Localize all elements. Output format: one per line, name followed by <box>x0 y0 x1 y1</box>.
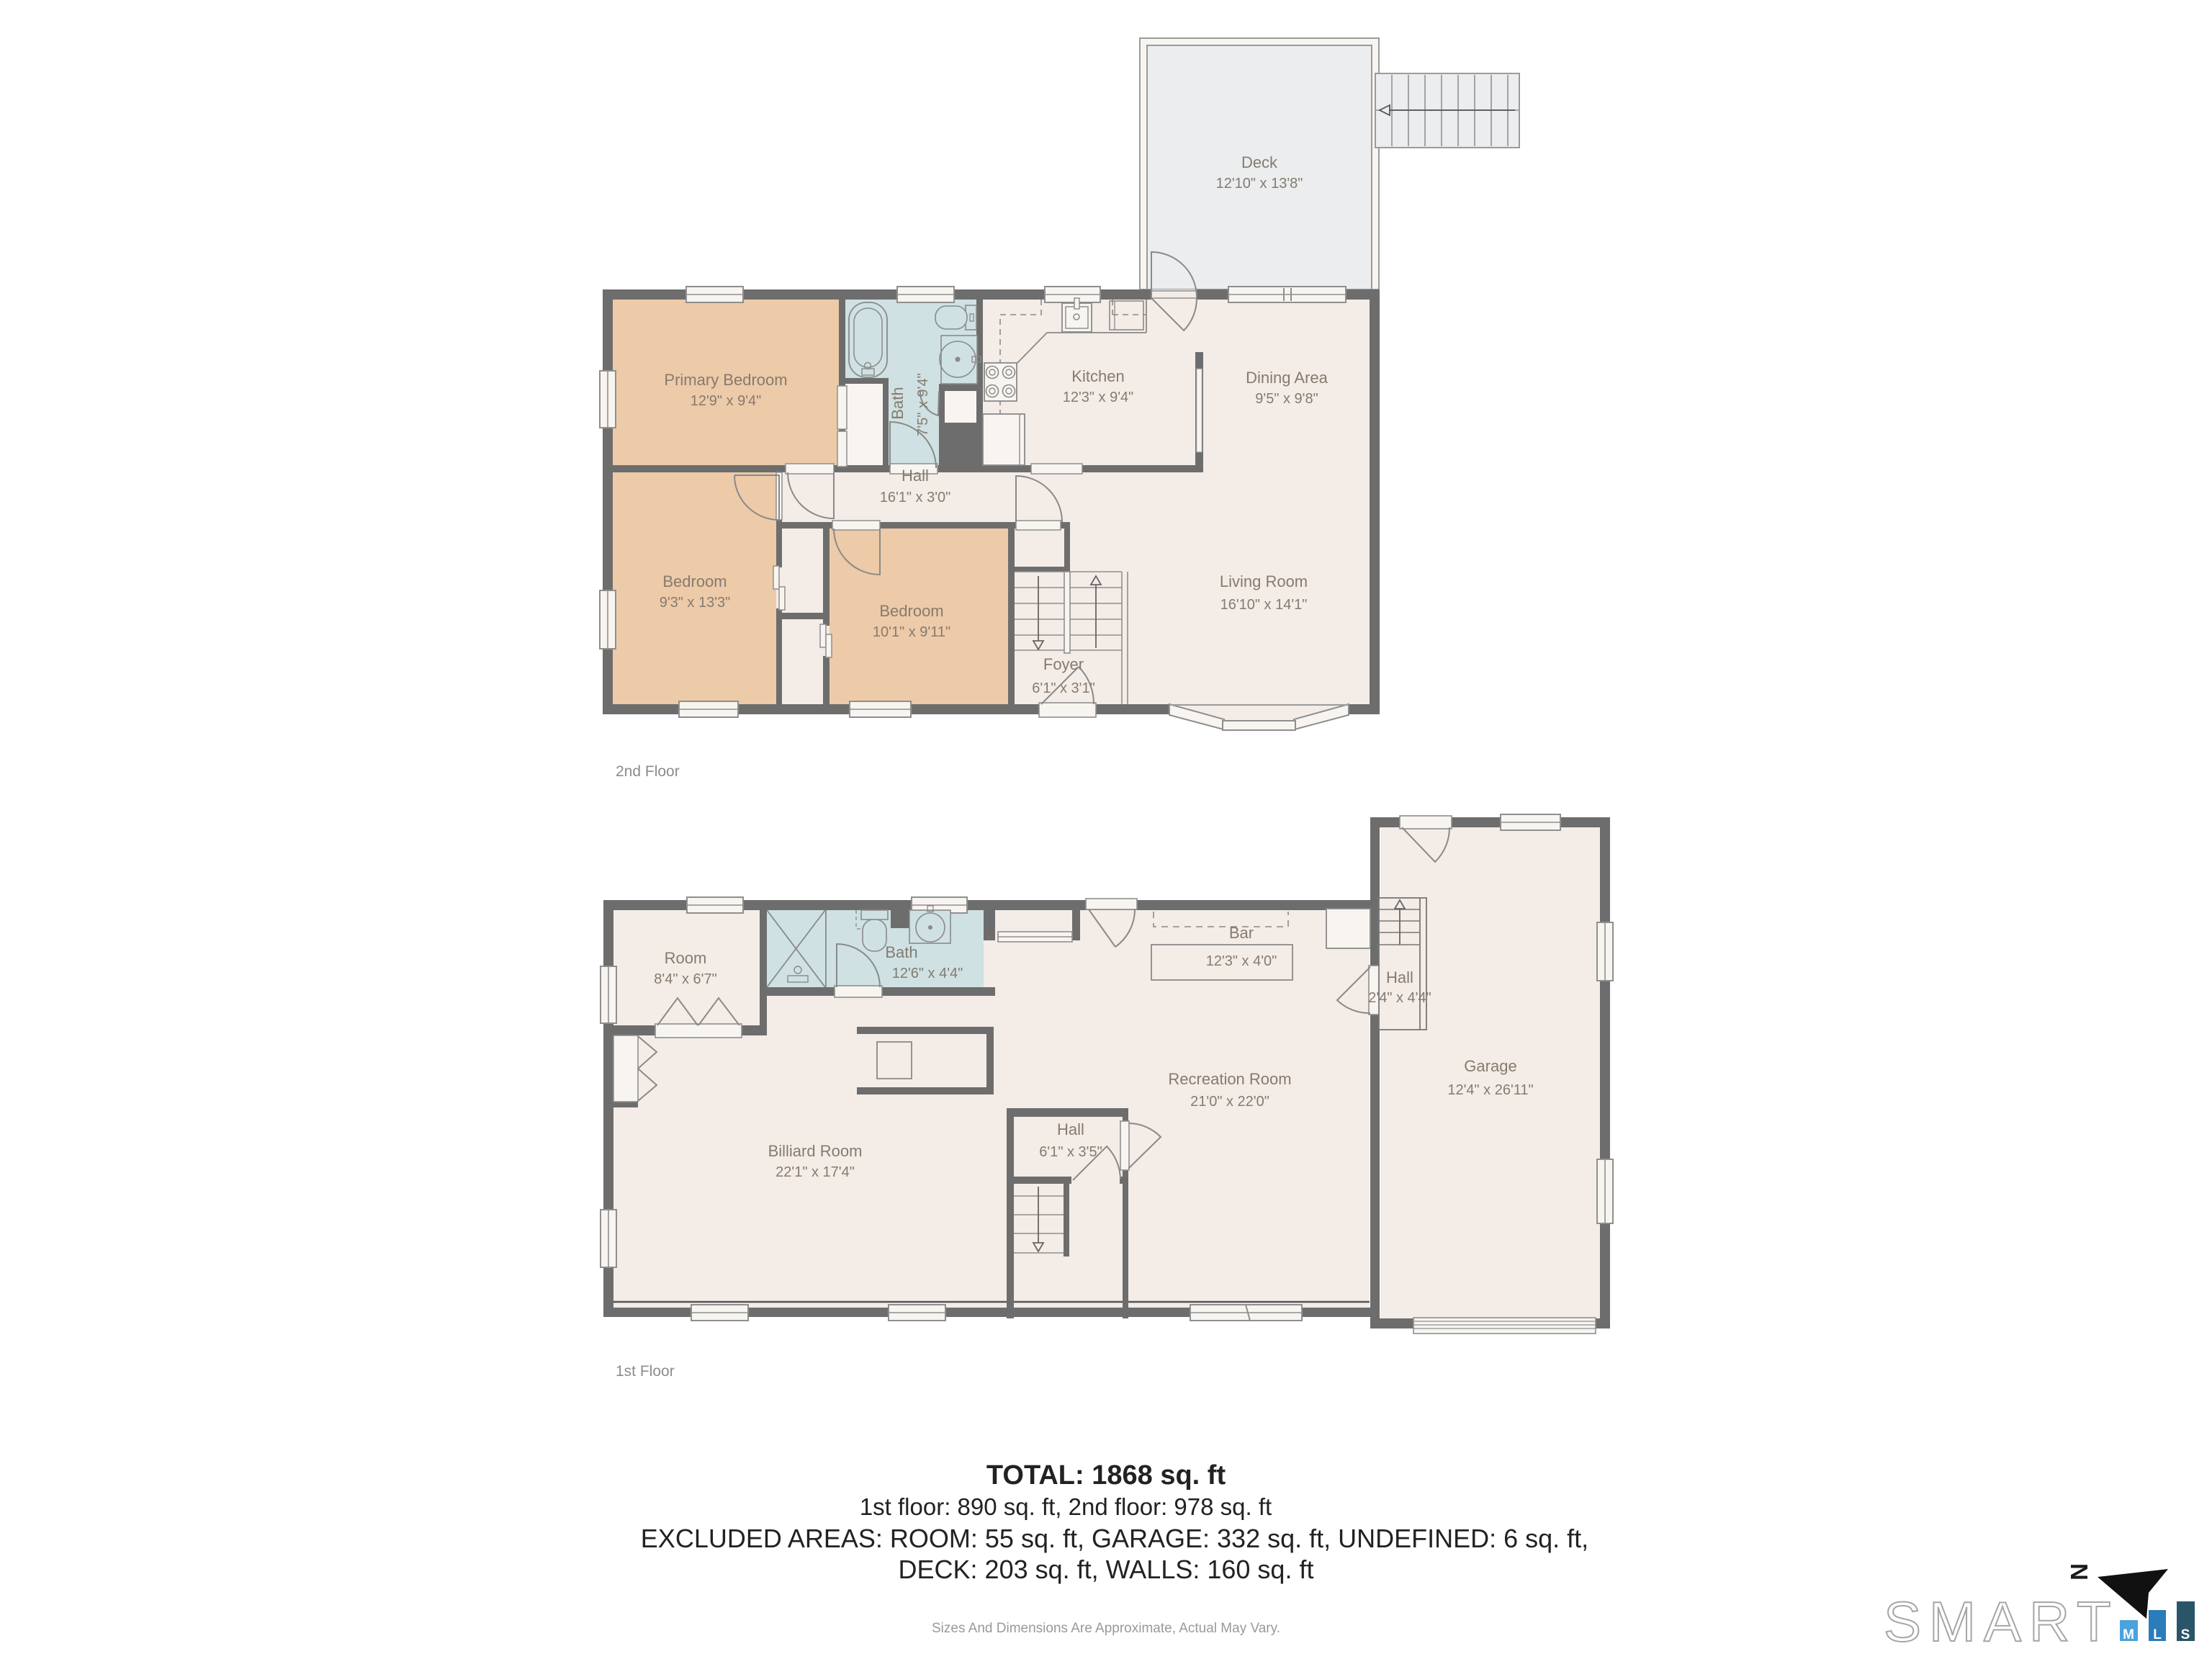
svg-text:L: L <box>2153 1627 2162 1642</box>
svg-text:2nd Floor: 2nd Floor <box>616 763 680 780</box>
svg-text:12'6" x 4'4": 12'6" x 4'4" <box>892 966 963 981</box>
svg-text:1st Floor: 1st Floor <box>616 1363 675 1380</box>
svg-text:22'1" x 17'4": 22'1" x 17'4" <box>775 1164 855 1180</box>
svg-text:Billiard Room: Billiard Room <box>768 1142 863 1160</box>
svg-text:12'4" x 26'11": 12'4" x 26'11" <box>1447 1082 1533 1098</box>
svg-text:Hall: Hall <box>1386 968 1413 986</box>
svg-text:Garage: Garage <box>1464 1057 1516 1075</box>
svg-text:Recreation Room: Recreation Room <box>1168 1070 1291 1088</box>
svg-text:DECK: 203 sq. ft, WALLS: 160 s: DECK: 203 sq. ft, WALLS: 160 sq. ft <box>899 1555 1314 1584</box>
svg-text:Deck: Deck <box>1241 153 1278 171</box>
svg-text:9'5" x 9'8": 9'5" x 9'8" <box>1255 391 1318 407</box>
svg-text:Bath: Bath <box>885 943 917 961</box>
svg-text:2'4" x 4'4": 2'4" x 4'4" <box>1368 990 1431 1006</box>
svg-text:Living Room: Living Room <box>1220 572 1308 590</box>
svg-text:6'1" x 3'5": 6'1" x 3'5" <box>1039 1144 1102 1160</box>
svg-text:8'4" x 6'7": 8'4" x 6'7" <box>654 971 716 987</box>
svg-text:Hall: Hall <box>902 467 929 485</box>
svg-text:12'3" x 9'4": 12'3" x 9'4" <box>1063 390 1134 405</box>
svg-text:16'1" x 3'0": 16'1" x 3'0" <box>880 490 951 505</box>
svg-text:6'1" x 3'1": 6'1" x 3'1" <box>1032 680 1094 696</box>
svg-text:Bar: Bar <box>1229 924 1254 942</box>
svg-text:M: M <box>2123 1627 2134 1642</box>
svg-text:16'10" x 14'1": 16'10" x 14'1" <box>1220 597 1308 613</box>
svg-text:Kitchen: Kitchen <box>1071 367 1124 385</box>
svg-text:Primary Bedroom: Primary Bedroom <box>664 371 787 389</box>
svg-text:21'0" x 22'0": 21'0" x 22'0" <box>1190 1094 1269 1110</box>
svg-text:12'3" x 4'0": 12'3" x 4'0" <box>1206 953 1277 969</box>
svg-text:Foyer: Foyer <box>1043 655 1084 673</box>
svg-text:Dining Area: Dining Area <box>1246 369 1328 387</box>
svg-text:SMART: SMART <box>1884 1590 2119 1653</box>
svg-text:Bedroom: Bedroom <box>879 602 943 620</box>
svg-text:Bedroom: Bedroom <box>662 572 727 590</box>
svg-text:Room: Room <box>665 949 707 967</box>
svg-text:Bath: Bath <box>889 387 907 419</box>
svg-text:9'3" x 13'3": 9'3" x 13'3" <box>660 595 731 611</box>
svg-text:EXCLUDED AREAS: ROOM: 55 sq. f: EXCLUDED AREAS: ROOM: 55 sq. ft, GARAGE:… <box>641 1524 1588 1553</box>
svg-text:Hall: Hall <box>1057 1120 1084 1138</box>
svg-text:TOTAL: 1868 sq. ft: TOTAL: 1868 sq. ft <box>986 1460 1226 1491</box>
svg-text:10'1" x 9'11": 10'1" x 9'11" <box>873 624 950 640</box>
svg-text:12'10" x 13'8": 12'10" x 13'8" <box>1216 176 1303 192</box>
svg-text:7'5" x 9'4": 7'5" x 9'4" <box>915 373 931 436</box>
svg-text:12'9" x 9'4": 12'9" x 9'4" <box>691 393 762 409</box>
svg-text:S: S <box>2181 1627 2190 1642</box>
svg-text:Sizes And Dimensions Are Appro: Sizes And Dimensions Are Approximate, Ac… <box>932 1621 1280 1636</box>
svg-text:1st floor: 890 sq. ft, 2nd flo: 1st floor: 890 sq. ft, 2nd floor: 978 sq… <box>860 1493 1272 1520</box>
svg-text:N: N <box>2066 1563 2092 1581</box>
